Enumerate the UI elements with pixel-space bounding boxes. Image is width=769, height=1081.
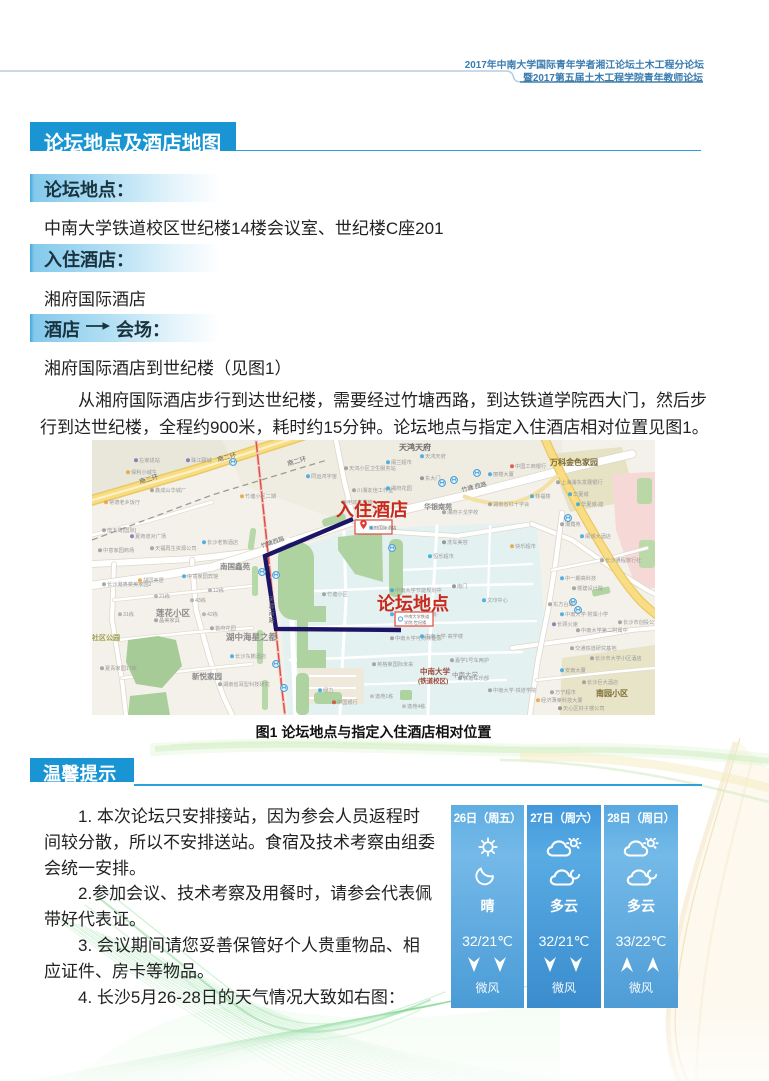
- svg-text:同运鸿宇宙: 同运鸿宇宙: [311, 472, 337, 480]
- svg-text:万宁超市: 万宁超市: [555, 688, 576, 696]
- svg-text:华夏城: 华夏城: [573, 490, 589, 498]
- svg-text:华银南苑: 华银南苑: [424, 502, 452, 511]
- svg-text:上海浦东发展银行: 上海浦东发展银行: [561, 478, 603, 486]
- svg-text:中意家园宾馆: 中意家园宾馆: [187, 572, 218, 580]
- svg-text:天鸿小区卫生服务站: 天鸿小区卫生服务站: [349, 464, 396, 472]
- svg-text:中南大学第二附属中: 中南大学第二附属中: [581, 626, 628, 634]
- svg-text:经济薄莱科技大厦: 经济薄莱科技大厦: [541, 696, 583, 704]
- svg-text:长沙东鹏酒店: 长沙东鹏酒店: [235, 652, 266, 660]
- svg-text:常德老乡饭厅: 常德老乡饭厅: [109, 498, 140, 506]
- svg-text:东大门: 东大门: [425, 474, 441, 482]
- svg-text:快乐超市: 快乐超市: [515, 542, 536, 550]
- svg-text:天鸿天府: 天鸿天府: [399, 442, 431, 452]
- svg-text:英格莱国际未来: 英格莱国际未来: [377, 660, 414, 668]
- svg-text:长沙通程旅行社: 长沙通程旅行社: [605, 556, 641, 564]
- svg-text:逸苑1栋: 逸苑1栋: [375, 692, 393, 700]
- svg-text:洗车美容: 洗车美容: [447, 538, 468, 546]
- svg-text:湘府国际酒店: 湘府国际酒店: [369, 525, 397, 532]
- svg-text:中意家园商场: 中意家园商场: [103, 546, 134, 554]
- svg-text:湖中海星之都: 湖中海星之都: [226, 632, 278, 642]
- svg-text:安南大厦: 安南大厦: [565, 666, 586, 674]
- svg-text:阑兰超市: 阑兰超市: [391, 458, 412, 466]
- svg-text:21栋: 21栋: [159, 592, 170, 600]
- svg-text:中南大学铁道: 中南大学铁道: [404, 613, 430, 620]
- svg-text:中南大学: 中南大学: [420, 666, 450, 676]
- svg-text:楼建设计院: 楼建设计院: [577, 584, 604, 592]
- svg-text:南天鹭(国际): 南天鹭(国际): [107, 526, 137, 534]
- svg-text:天鸿天府: 天鸿天府: [425, 452, 446, 460]
- svg-text:学院·世纪楼: 学院·世纪楼: [404, 619, 426, 626]
- svg-text:南国鑫苑: 南国鑫苑: [220, 561, 250, 571]
- svg-text:长沙市创投公司: 长沙市创投公司: [623, 618, 655, 626]
- svg-text:左家垅站: 左家垅站: [139, 456, 160, 464]
- svg-text:中南大学节能规划中: 中南大学节能规划中: [395, 586, 442, 594]
- svg-text:潮霞苑: 潮霞苑: [565, 520, 581, 528]
- svg-text:珠江郦城: 珠江郦城: [191, 456, 213, 464]
- svg-text:中国工商银行: 中国工商银行: [515, 462, 546, 470]
- svg-text:社区公园: 社区公园: [92, 633, 120, 642]
- svg-text:南园小区: 南园小区: [596, 688, 628, 698]
- svg-text:恒乐超市: 恒乐超市: [433, 552, 454, 560]
- svg-text:胡同美居: 胡同美居: [143, 576, 164, 584]
- svg-text:华夏城-座: 华夏城-座: [581, 500, 603, 508]
- svg-text:南门: 南门: [457, 582, 467, 590]
- svg-text:42栋: 42栋: [207, 610, 218, 618]
- svg-text:逸苑4栋: 逸苑4栋: [407, 702, 425, 710]
- svg-text:天福再生资源公司: 天福再生资源公司: [155, 544, 197, 552]
- svg-text:天心区好子楼公司: 天心区好子楼公司: [563, 704, 605, 712]
- svg-text:芙蓉南路: 芙蓉南路: [267, 595, 274, 624]
- svg-text:鑫成山华城厂: 鑫成山华城厂: [155, 486, 186, 494]
- svg-text:43栋: 43栋: [195, 596, 206, 604]
- svg-text:湘府花园: 湘府花园: [391, 484, 412, 492]
- svg-text:丽楼大厦: 丽楼大厦: [493, 470, 514, 478]
- svg-text:莲花小区: 莲花小区: [156, 608, 191, 618]
- svg-text:新悦家园: 新悦家园: [192, 671, 222, 681]
- svg-text:31栋: 31栋: [123, 610, 134, 618]
- svg-text:中南大学·铁道学院: 中南大学·铁道学院: [493, 686, 537, 694]
- svg-text:交通铁道研究基地: 交通铁道研究基地: [575, 644, 617, 652]
- svg-text:论坛地点: 论坛地点: [377, 593, 449, 614]
- svg-text:湖南省耳型科技研究: 湖南省耳型科技研究: [223, 680, 270, 688]
- svg-text:东方台球: 东方台球: [553, 600, 575, 608]
- svg-text:(铁道校区): (铁道校区): [418, 676, 448, 685]
- svg-text:12栋: 12栋: [213, 586, 224, 594]
- svg-text:绿力: 绿力: [323, 686, 333, 694]
- svg-text:文印中心: 文印中心: [487, 596, 508, 604]
- svg-text:竹塘小区二期: 竹塘小区二期: [245, 492, 276, 500]
- svg-text:长颈火速: 长颈火速: [557, 620, 578, 628]
- svg-text:入住酒店: 入住酒店: [336, 499, 408, 520]
- svg-text:夏青家园17栋: 夏青家园17栋: [105, 664, 137, 672]
- svg-text:夏商道对广场: 夏商道对广场: [135, 532, 166, 540]
- svg-text:中国银行: 中国银行: [337, 698, 358, 706]
- svg-text:中南大学·附属小学: 中南大学·附属小学: [565, 610, 608, 618]
- svg-text:中南大学·高学楼: 中南大学·高学楼: [425, 632, 463, 640]
- svg-text:湖南省红十字会: 湖南省红十字会: [493, 500, 529, 508]
- svg-text:嘉学1号车两护: 嘉学1号车两护: [455, 656, 489, 664]
- svg-text:长沙市大学小区酒店: 长沙市大学小区酒店: [595, 654, 642, 662]
- svg-text:长沙巨大酒店: 长沙巨大酒店: [587, 678, 618, 686]
- svg-text:万科金色家园: 万科金色家园: [549, 457, 598, 467]
- svg-text:中南大学: 中南大学: [452, 670, 479, 679]
- svg-text:竹塘小区: 竹塘小区: [327, 590, 348, 598]
- svg-text:菲福楼: 菲福楼: [535, 492, 551, 500]
- svg-text:首府花园: 首府花园: [215, 624, 236, 632]
- svg-text:长沙老熊酒店: 长沙老熊酒店: [207, 538, 238, 546]
- svg-text:阑城大酒店: 阑城大酒店: [585, 532, 611, 540]
- svg-text:中一期高科技: 中一期高科技: [565, 574, 596, 582]
